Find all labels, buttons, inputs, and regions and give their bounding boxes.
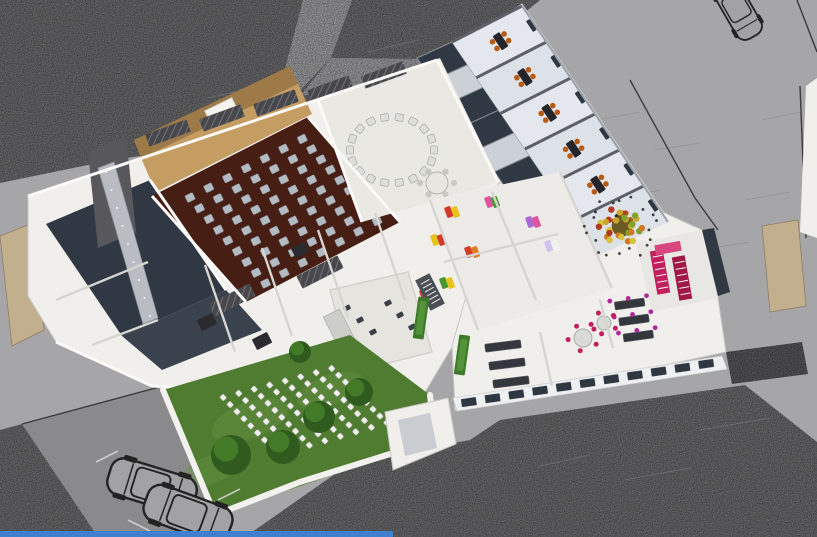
wing-chair bbox=[592, 189, 598, 195]
facade-window bbox=[484, 393, 501, 404]
wing-chair bbox=[501, 31, 507, 37]
table-chair bbox=[425, 191, 431, 197]
chair-dot bbox=[626, 296, 631, 301]
chair-dot bbox=[634, 328, 639, 333]
dining-chair bbox=[613, 326, 618, 331]
chair-dot bbox=[630, 312, 635, 317]
tree-foliage bbox=[639, 225, 645, 231]
scatter-dot bbox=[639, 254, 642, 257]
facade-window bbox=[626, 370, 643, 381]
circle-chair bbox=[380, 113, 389, 121]
scatter-dot bbox=[629, 196, 632, 199]
table-chair bbox=[442, 169, 448, 175]
wing-chair bbox=[587, 182, 593, 188]
tree-foliage bbox=[606, 230, 612, 236]
scatter-dot bbox=[594, 239, 597, 242]
stone-wall-right bbox=[762, 220, 806, 312]
chair-dot bbox=[607, 299, 612, 304]
wing-chair bbox=[530, 74, 536, 80]
scatter-dot bbox=[597, 251, 600, 254]
scatter-dot bbox=[618, 252, 621, 255]
dining-chair bbox=[589, 322, 594, 327]
table-chair bbox=[417, 180, 423, 186]
wing-chair bbox=[554, 109, 560, 115]
tree-foliage bbox=[603, 219, 609, 225]
circle-chair bbox=[347, 146, 354, 154]
wing-chair bbox=[506, 38, 512, 44]
tree-highlight bbox=[290, 342, 304, 356]
facade-window bbox=[508, 389, 525, 400]
dining-chair bbox=[591, 327, 596, 332]
scatter-dot bbox=[642, 208, 645, 211]
tree-foliage bbox=[618, 234, 624, 240]
wing-chair bbox=[494, 46, 500, 52]
wing-chair bbox=[526, 67, 532, 73]
ramp-light bbox=[127, 243, 129, 245]
wing-chair bbox=[550, 103, 556, 109]
facade-window bbox=[698, 358, 715, 369]
tree-foliage bbox=[613, 217, 619, 223]
tree-foliage bbox=[630, 238, 636, 244]
scatter-dot bbox=[649, 238, 652, 241]
chair-dot bbox=[616, 331, 621, 336]
scatter-dot bbox=[592, 216, 595, 219]
facade-window bbox=[603, 374, 620, 385]
ramp-light bbox=[149, 315, 151, 317]
scatter-dot bbox=[605, 254, 608, 257]
scatter-dot bbox=[655, 219, 658, 222]
wing-chair bbox=[574, 139, 580, 145]
tree-highlight bbox=[305, 402, 325, 422]
tree-foliage bbox=[596, 224, 602, 230]
tree-foliage bbox=[628, 229, 634, 235]
dining-chair bbox=[611, 313, 616, 318]
facade-window bbox=[579, 377, 596, 388]
scatter-dot bbox=[583, 225, 586, 228]
tree-highlight bbox=[268, 431, 289, 452]
tree-foliage bbox=[621, 214, 627, 220]
scene bbox=[0, 0, 817, 537]
tree-highlight bbox=[347, 379, 364, 396]
scatter-dot bbox=[612, 201, 615, 204]
wing-chair bbox=[599, 175, 605, 181]
wing-chair bbox=[490, 39, 496, 45]
blue-edge-strip bbox=[0, 531, 393, 537]
facade-window bbox=[531, 385, 548, 396]
tree-highlight bbox=[214, 437, 239, 462]
facade-window bbox=[460, 397, 477, 408]
scatter-dot bbox=[598, 200, 601, 203]
facade-window bbox=[674, 362, 691, 373]
ramp-light bbox=[111, 189, 113, 191]
round-table bbox=[426, 172, 448, 194]
tree-foliage bbox=[608, 206, 614, 212]
tree-foliage bbox=[632, 212, 638, 218]
wing-chair bbox=[579, 145, 585, 151]
scatter-dot bbox=[618, 199, 621, 202]
dining-chair bbox=[596, 311, 601, 316]
circle-chair bbox=[431, 146, 438, 154]
dining-chair bbox=[578, 348, 583, 353]
dining-chair bbox=[566, 337, 571, 342]
table-chair bbox=[451, 180, 457, 186]
circle-chair bbox=[395, 178, 404, 186]
dining-chair bbox=[599, 331, 604, 336]
wing-chair bbox=[563, 147, 569, 153]
tree-foliage bbox=[606, 237, 612, 243]
wing-chair bbox=[538, 111, 544, 117]
ramp-light bbox=[138, 279, 140, 281]
wing-chair bbox=[514, 75, 520, 81]
dining-chair bbox=[574, 324, 579, 329]
facade-window bbox=[555, 381, 572, 392]
scatter-dot bbox=[585, 231, 588, 234]
wing-chair bbox=[543, 117, 549, 123]
scatter-dot bbox=[628, 247, 631, 250]
wing-chair bbox=[567, 153, 573, 159]
scatter-dot bbox=[648, 228, 651, 231]
scatter-dot bbox=[652, 213, 655, 216]
ramp-light bbox=[122, 225, 124, 227]
circle-chair bbox=[395, 113, 404, 121]
render-canvas bbox=[0, 0, 817, 537]
scatter-dot bbox=[646, 244, 649, 247]
ramp-light bbox=[144, 297, 146, 299]
chair-dot bbox=[653, 325, 658, 330]
tree-foliage bbox=[629, 221, 635, 227]
dining-chair bbox=[594, 342, 599, 347]
chair-dot bbox=[648, 309, 653, 314]
circle-chair bbox=[380, 178, 389, 186]
scatter-dot bbox=[594, 211, 597, 214]
wing-chair bbox=[519, 81, 525, 87]
wing-chair bbox=[603, 181, 609, 187]
table-chair bbox=[425, 169, 431, 175]
ramp-light bbox=[133, 261, 135, 263]
dining-table bbox=[574, 329, 592, 347]
facade-window bbox=[650, 366, 667, 377]
tree-foliage bbox=[617, 209, 623, 215]
ramp-light bbox=[116, 207, 118, 209]
chair-dot bbox=[644, 293, 649, 298]
